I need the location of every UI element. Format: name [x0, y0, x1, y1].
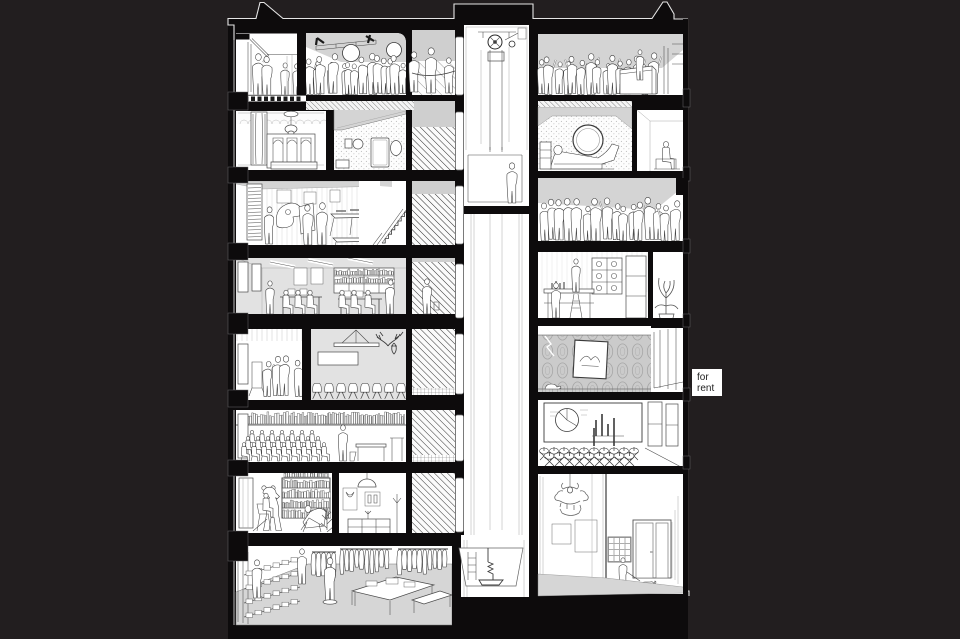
svg-text:rent: rent: [697, 383, 714, 394]
svg-text:for: for: [697, 372, 709, 383]
